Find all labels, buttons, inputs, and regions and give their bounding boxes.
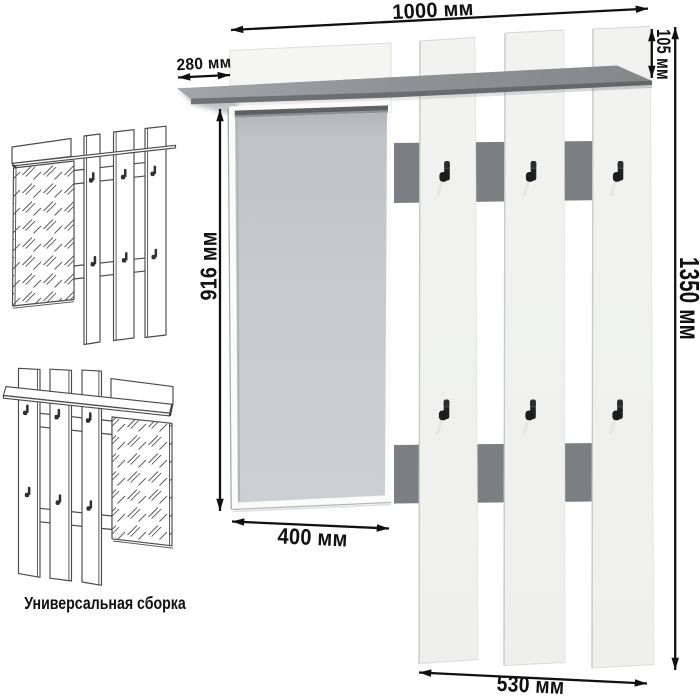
svg-text:280 мм: 280 мм (176, 54, 232, 75)
svg-text:916 мм: 916 мм (195, 231, 222, 300)
svg-text:400 мм: 400 мм (277, 523, 348, 552)
svg-text:1000 мм: 1000 мм (392, 0, 475, 24)
svg-text:105 мм: 105 мм (652, 29, 673, 80)
svg-text:530 мм: 530 мм (496, 672, 565, 700)
svg-text:Универсальная сборка: Универсальная сборка (24, 595, 186, 614)
svg-text:1350 мм: 1350 мм (673, 257, 700, 340)
